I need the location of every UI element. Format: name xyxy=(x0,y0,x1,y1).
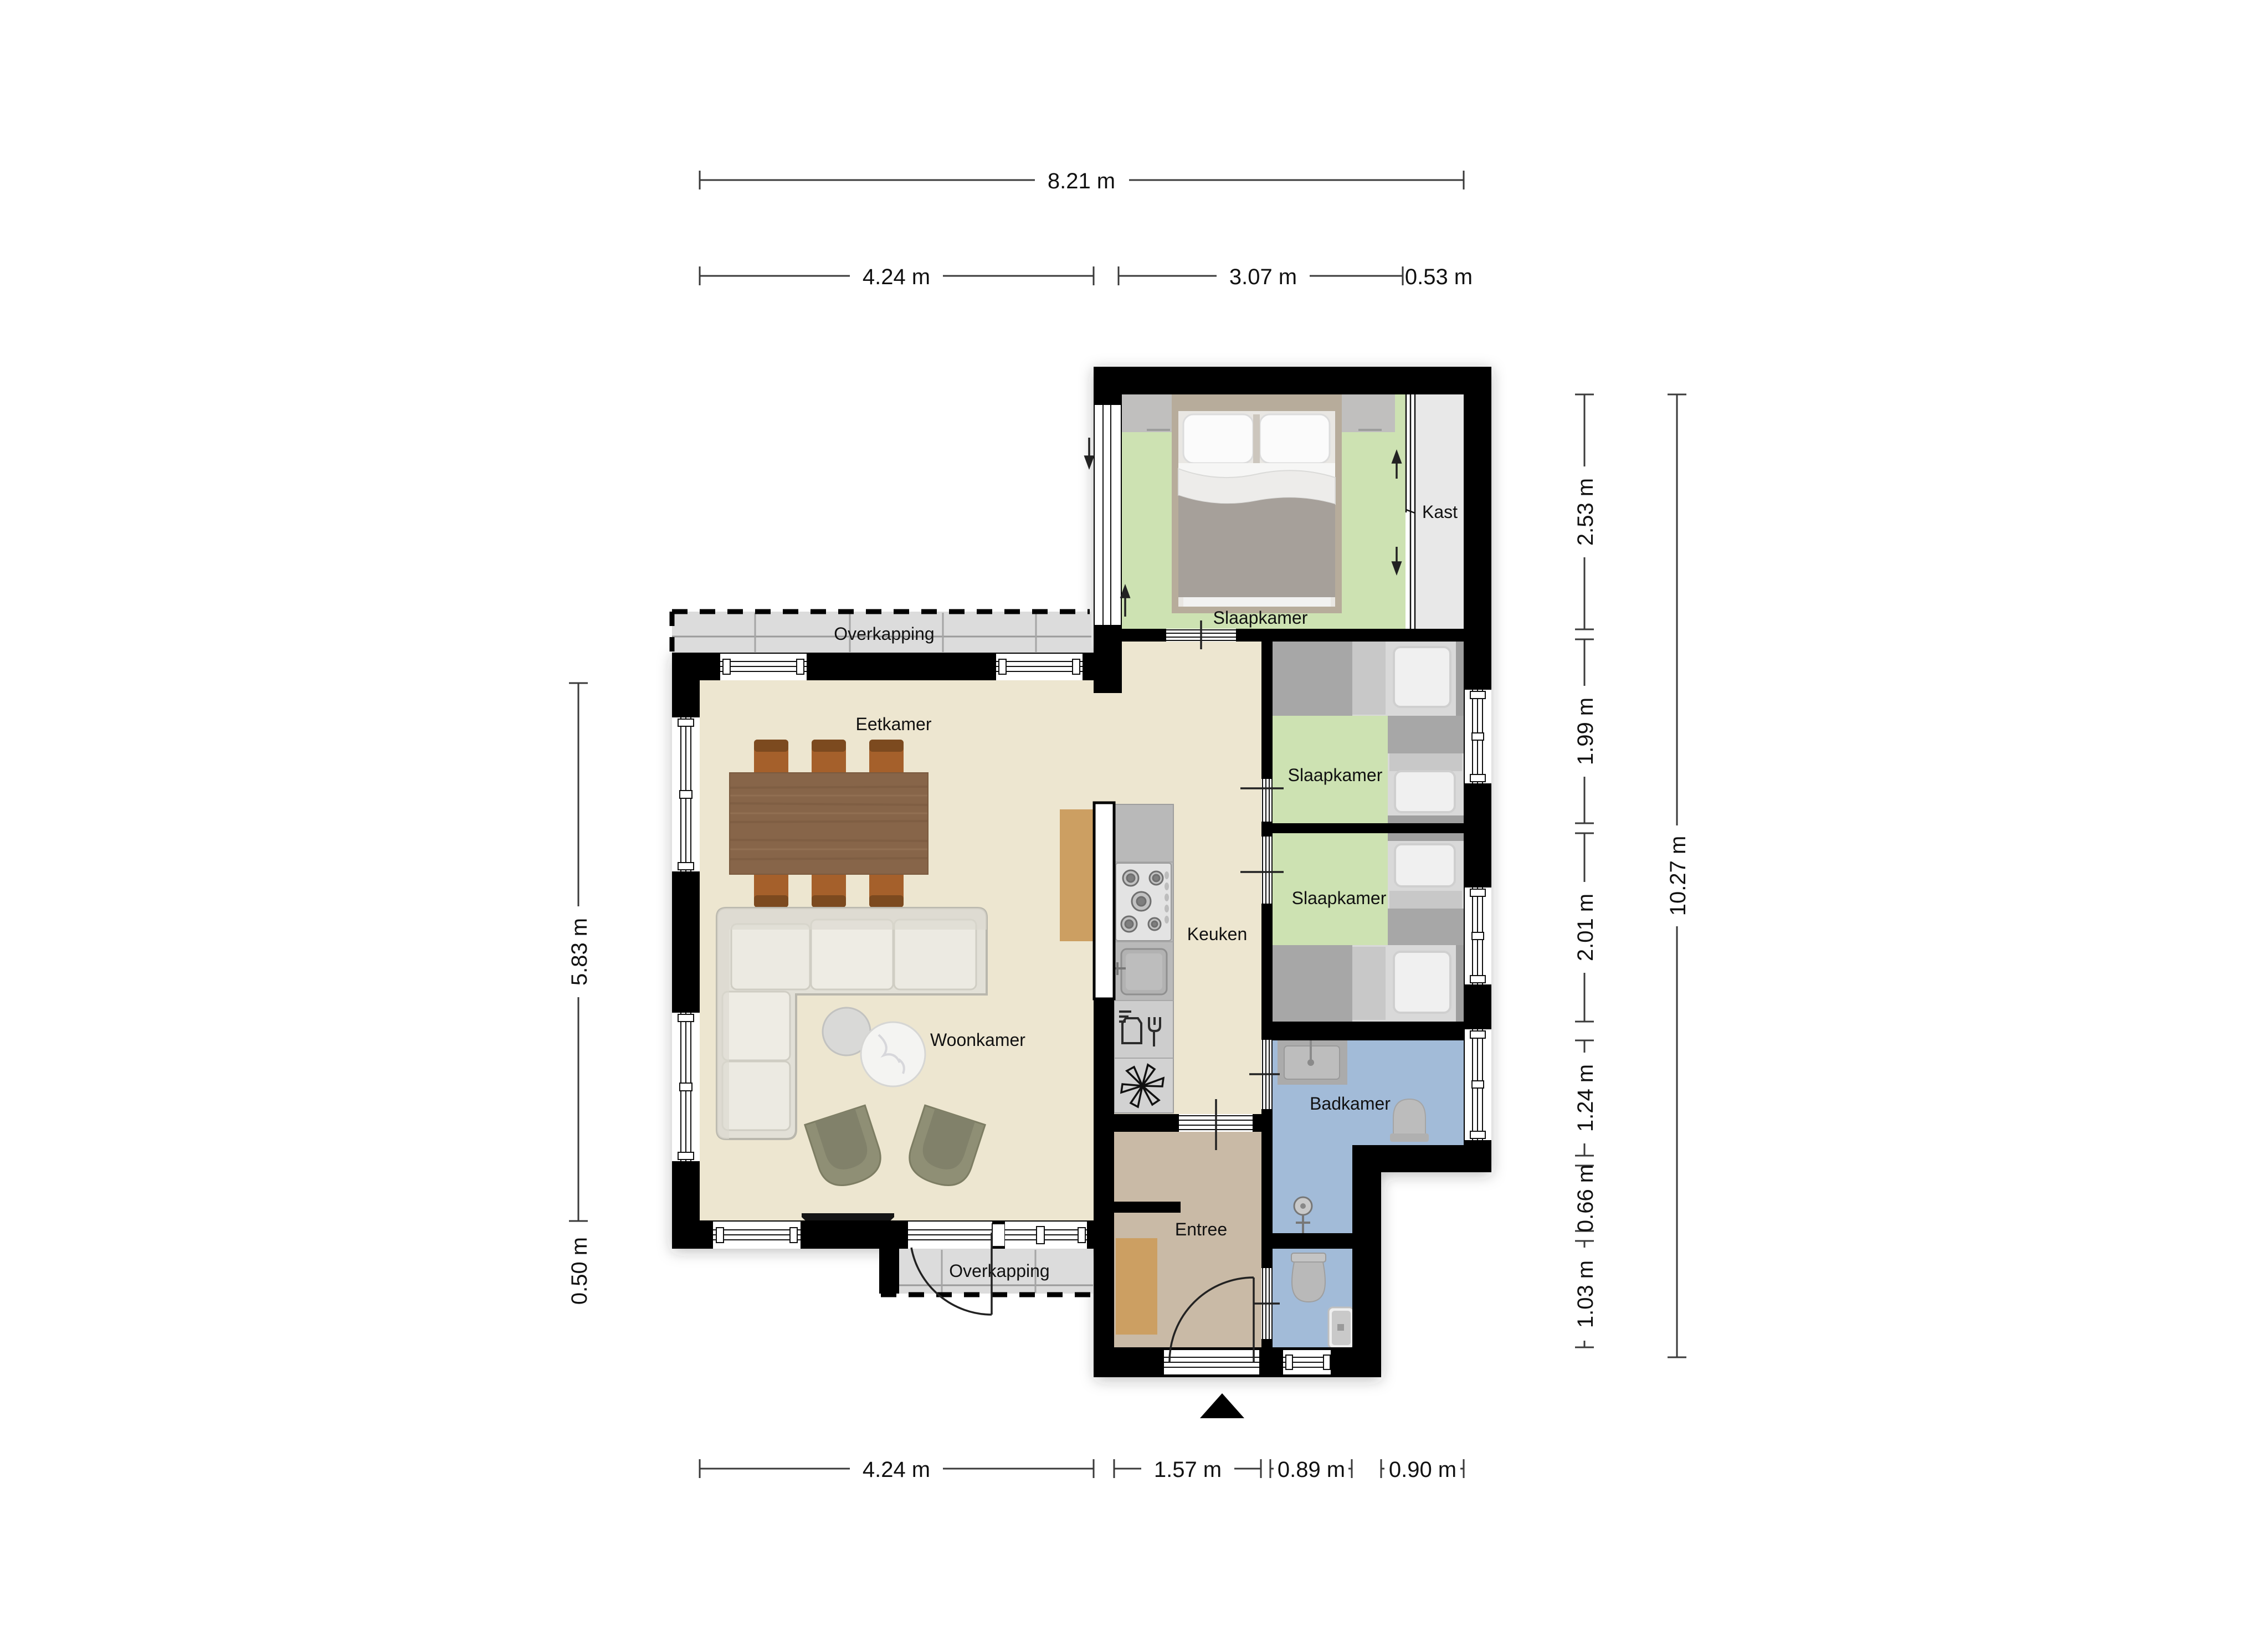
svg-text:0.89 m: 0.89 m xyxy=(1278,1458,1345,1482)
svg-text:Overkapping: Overkapping xyxy=(834,624,934,644)
svg-text:2.53 m: 2.53 m xyxy=(1573,478,1598,546)
svg-text:4.24 m: 4.24 m xyxy=(863,1458,930,1482)
svg-text:1.03 m: 1.03 m xyxy=(1573,1260,1598,1328)
svg-text:Badkamer: Badkamer xyxy=(1310,1094,1391,1114)
svg-text:8.21 m: 8.21 m xyxy=(1048,169,1115,193)
svg-text:3.07 m: 3.07 m xyxy=(1229,265,1297,289)
svg-text:2.01 m: 2.01 m xyxy=(1573,894,1598,961)
svg-text:Slaapkamer: Slaapkamer xyxy=(1292,888,1387,908)
svg-text:Slaapkamer: Slaapkamer xyxy=(1288,765,1383,785)
svg-text:1.57 m: 1.57 m xyxy=(1154,1458,1222,1482)
svg-text:0.50 m: 0.50 m xyxy=(567,1237,592,1305)
svg-text:1.24 m: 1.24 m xyxy=(1573,1064,1598,1132)
svg-text:1.99 m: 1.99 m xyxy=(1573,697,1598,765)
svg-text:Keuken: Keuken xyxy=(1187,924,1248,944)
svg-text:4.24 m: 4.24 m xyxy=(863,265,930,289)
svg-text:Eetkamer: Eetkamer xyxy=(856,714,932,734)
svg-text:0.53 m: 0.53 m xyxy=(1405,265,1473,289)
svg-text:Slaapkamer: Slaapkamer xyxy=(1213,608,1308,628)
svg-text:Woonkamer: Woonkamer xyxy=(930,1030,1025,1050)
svg-text:0.90 m: 0.90 m xyxy=(1389,1458,1456,1482)
svg-text:Kast: Kast xyxy=(1422,502,1458,522)
svg-text:10.27 m: 10.27 m xyxy=(1666,836,1690,916)
svg-text:5.83 m: 5.83 m xyxy=(567,918,592,986)
svg-text:Entree: Entree xyxy=(1175,1219,1227,1239)
svg-text:0.66 m: 0.66 m xyxy=(1573,1164,1598,1232)
svg-text:Overkapping: Overkapping xyxy=(949,1261,1049,1281)
